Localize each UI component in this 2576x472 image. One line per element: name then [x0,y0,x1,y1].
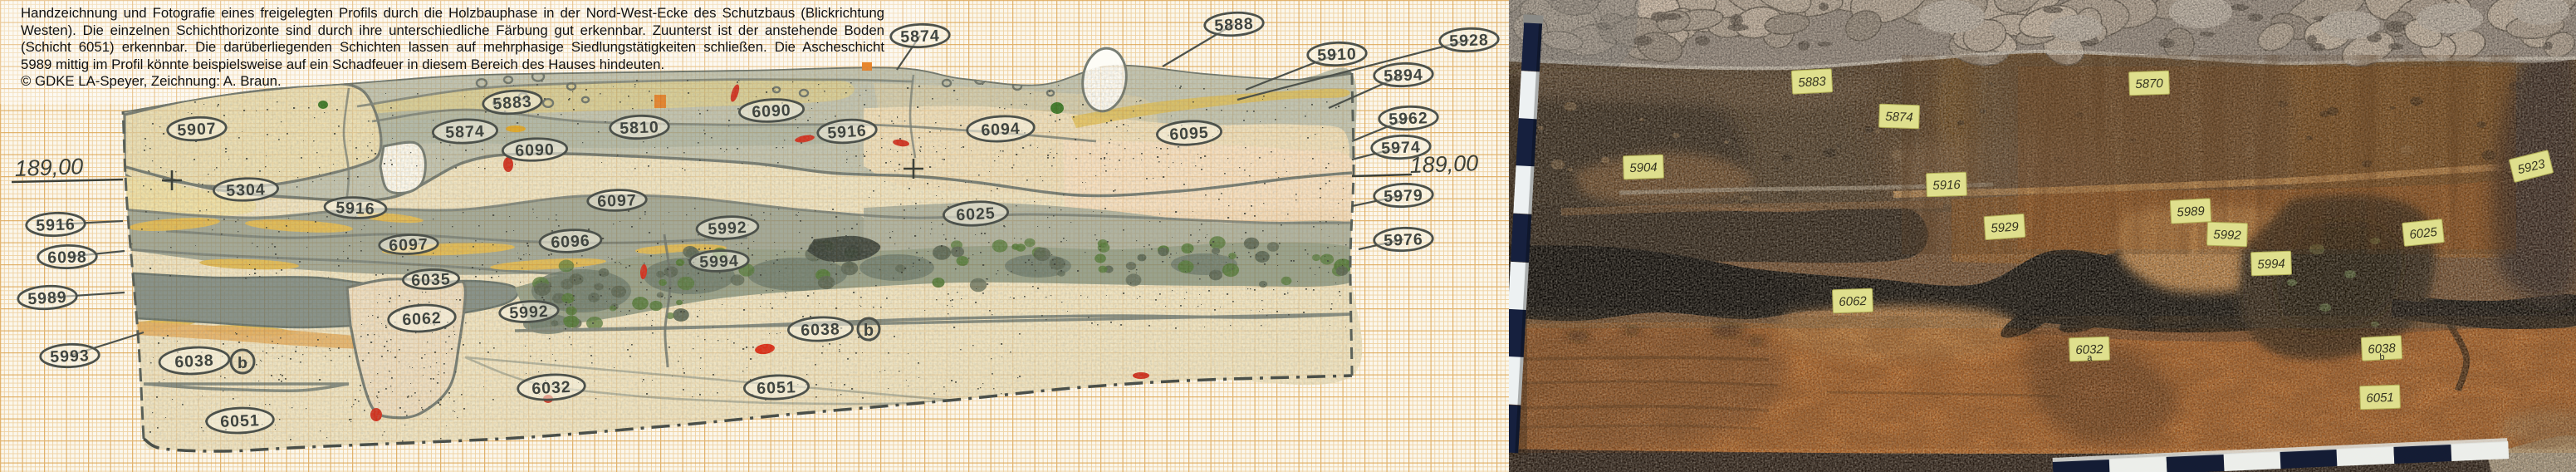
svg-text:5992: 5992 [2213,228,2242,243]
svg-text:5904: 5904 [1629,160,1658,175]
svg-text:5870: 5870 [2135,76,2164,91]
svg-text:5883: 5883 [1798,75,1827,91]
svg-text:5929: 5929 [1991,219,2020,235]
svg-text:6062: 6062 [1839,294,1868,309]
svg-text:5874: 5874 [1885,110,1913,125]
svg-text:5989: 5989 [2177,204,2206,220]
svg-text:6025: 6025 [2409,225,2439,242]
svg-text:5916: 5916 [1932,178,1961,193]
svg-text:6051: 6051 [2366,391,2394,406]
svg-text:b: b [2379,352,2385,362]
svg-text:5994: 5994 [2257,257,2285,272]
